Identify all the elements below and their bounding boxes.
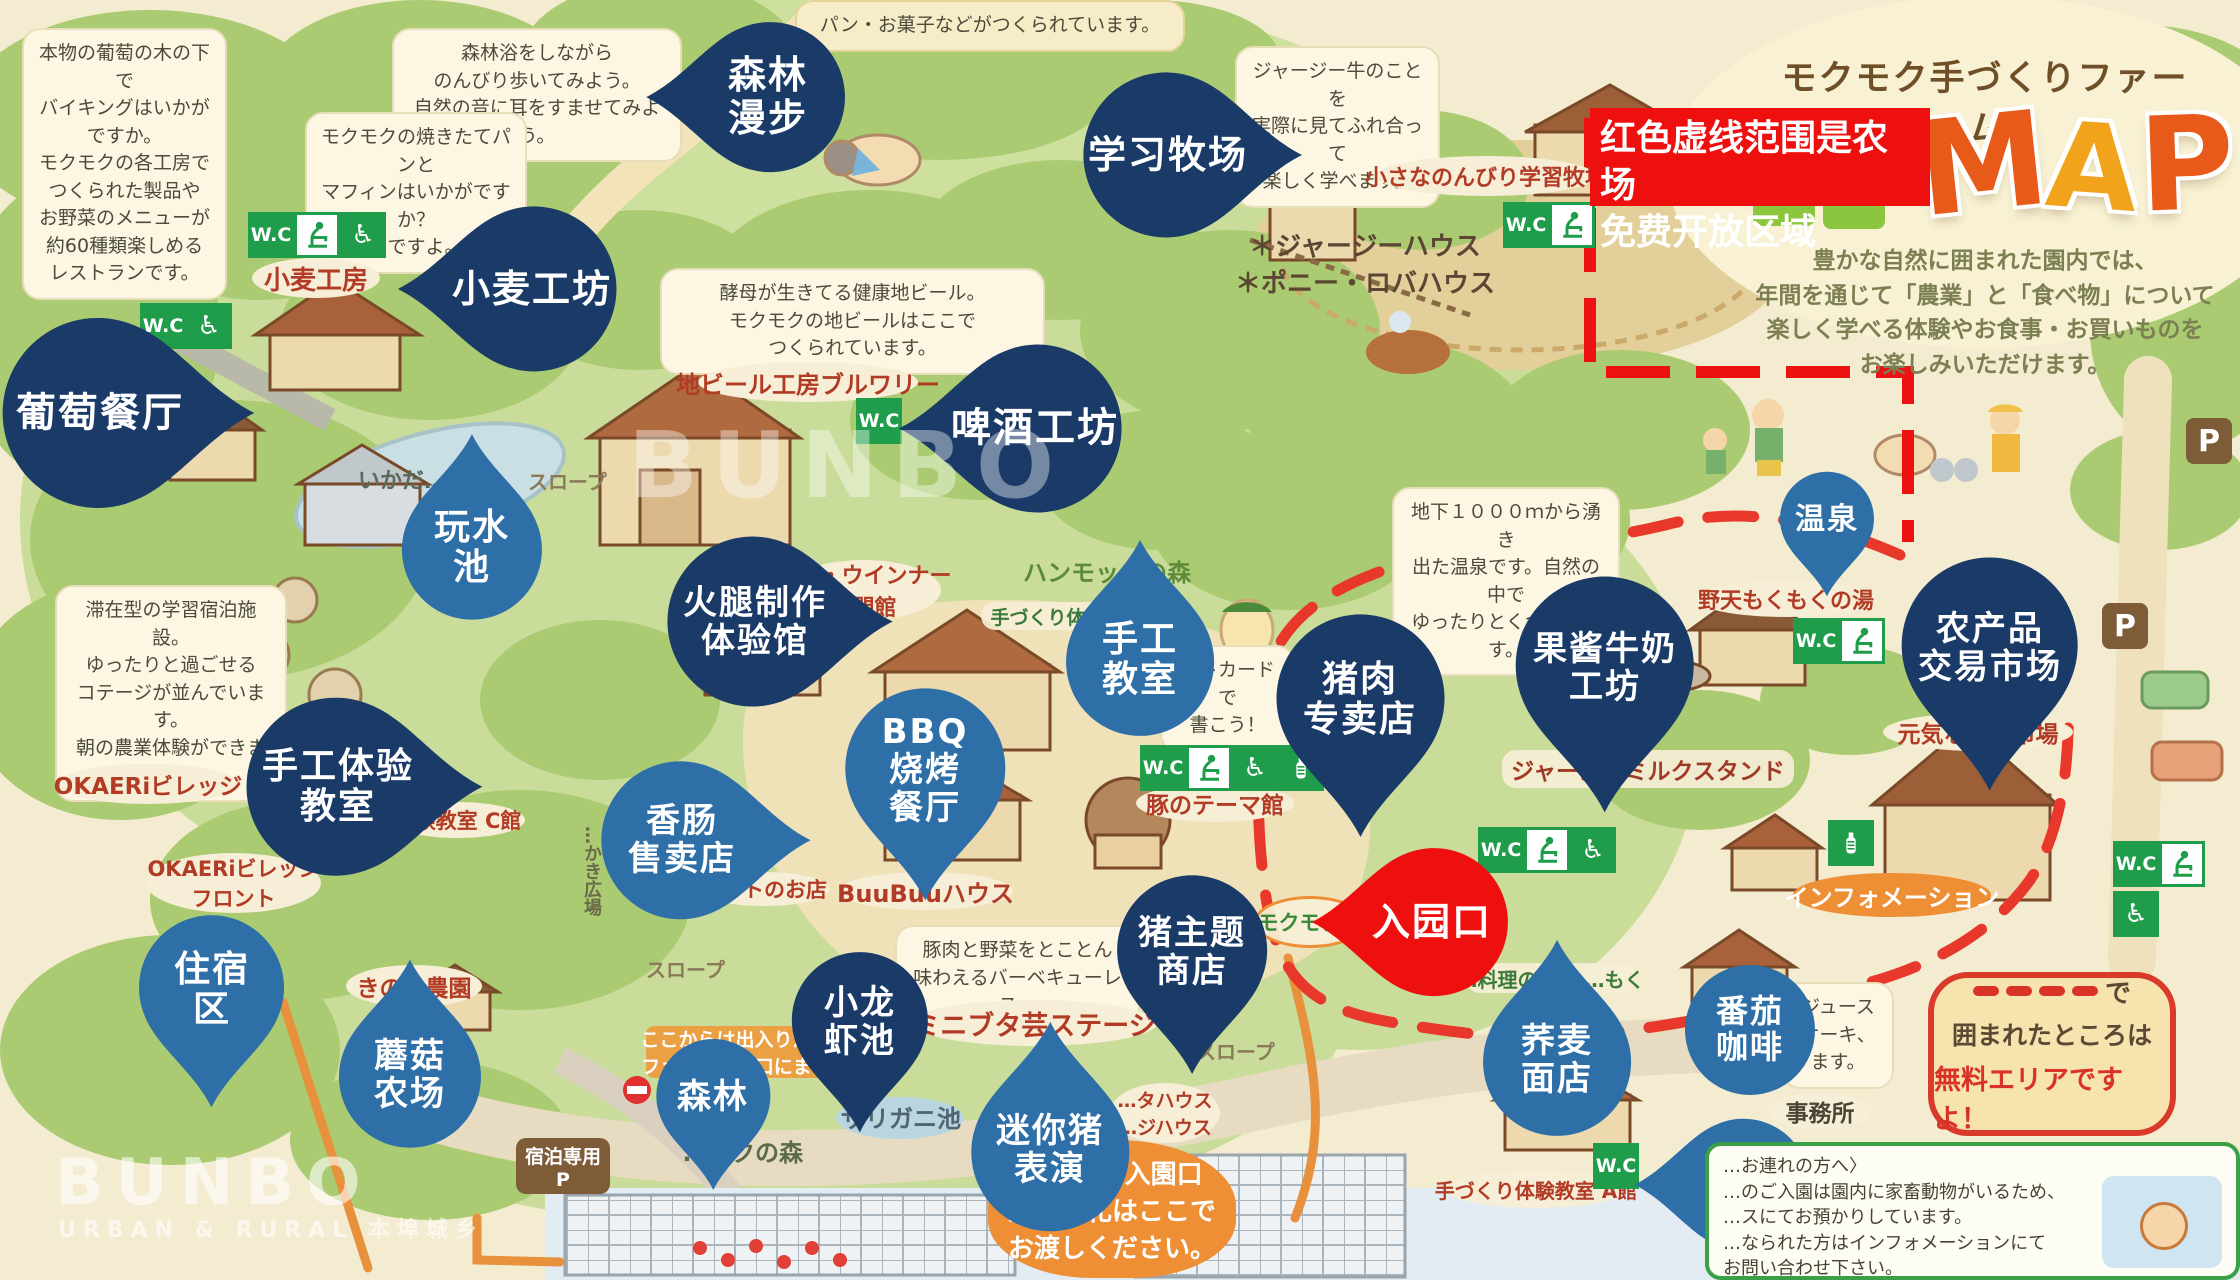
pin-label-line: 体验馆	[701, 622, 809, 660]
map-label: インフォメーション	[1793, 873, 1991, 917]
baby-icon	[1186, 745, 1232, 791]
watermark-center: BUNBO	[628, 412, 1068, 519]
wc-sign	[1828, 820, 1874, 866]
wc-icon: W.C	[1793, 618, 1839, 664]
speech-bubble: 本物の葡萄の木の下でバイキングはいかがですか。モクモクの各工房でつくられた製品や…	[22, 28, 227, 300]
pin-label-line: 池	[453, 548, 491, 588]
red-dash-icon	[2039, 986, 2065, 996]
baby-icon	[1549, 202, 1595, 248]
bubble-line: モクモクの各工房で	[36, 150, 213, 178]
map-label: 宿泊専用P	[516, 1138, 610, 1194]
pin-label-line: 入园口	[1372, 901, 1492, 944]
pin-label-line: 售卖店	[628, 840, 736, 878]
wc-sign: W.C	[1503, 202, 1595, 248]
pet-notice-box: …お連れの方へ〉 …のご入園は園内に家畜動物がいるため、 …スにてお預かりしてい…	[1705, 1142, 2240, 1280]
map-label-line: 豚のテーマ館	[1146, 786, 1284, 820]
red-notice-line: 免费开放区域	[1600, 210, 1920, 257]
pin-label: 森林漫步	[693, 22, 843, 172]
park-intro-text: 豊かな自然に囲まれた園内では、 年間を通じて「農業」と「食べ物」について 楽しく…	[1755, 244, 2215, 382]
map-label-line: 小さなのんびり学習牧場	[1365, 160, 1607, 192]
pin-label-line: 专卖店	[1303, 700, 1417, 740]
bottle-icon	[1828, 820, 1874, 866]
pin-label-line: 虾池	[824, 1022, 896, 1060]
pin-label: 猪主题商店	[1117, 877, 1267, 1027]
wheel-icon: ♿	[1570, 827, 1616, 873]
pin-label-line: 农产品	[1936, 610, 2044, 648]
pin-label: 葡萄餐厅	[5, 318, 195, 508]
map-letter-m: M	[1910, 82, 2055, 247]
pin-label: 住宿区	[140, 918, 285, 1063]
map-label-line: フロント	[192, 883, 276, 913]
pin-label-line: 小麦工坊	[452, 268, 612, 311]
wheel-icon: ♿	[2113, 891, 2159, 937]
map-label-line: お渡しください。	[1008, 1228, 1216, 1265]
pin-label-line: 手工	[1102, 620, 1178, 660]
pin-label-line: 蘑菇	[374, 1037, 446, 1075]
pin-label: 番茄咖啡	[1685, 965, 1815, 1095]
legend-line: 囲まれたところは	[1952, 1016, 2152, 1052]
wheel-icon: ♿	[340, 212, 386, 258]
pin-label-line: 表演	[1014, 1150, 1086, 1188]
pin-label: 温泉	[1780, 473, 1874, 567]
pin-label-line: 区	[193, 990, 231, 1030]
pin-label-line: 教室	[1102, 660, 1178, 700]
pin-label-line: 手工体验	[262, 747, 414, 787]
map-label-line: スロープ	[646, 954, 725, 983]
pin-label-line: 学习牧场	[1088, 134, 1248, 177]
pin-label-line: 餐厅	[889, 789, 961, 827]
wc-icon: W.C	[1140, 745, 1186, 791]
baby-icon	[1839, 618, 1885, 664]
watermark-corner: BUNBO	[55, 1146, 373, 1220]
bubble-line: 森林浴をしながら	[406, 40, 668, 68]
map-label-line: ＊ポニー・ロバハウス	[1235, 263, 1495, 300]
child-illustration	[2102, 1176, 2222, 1268]
pin-label-line: 面店	[1521, 1060, 1593, 1098]
pin-label-line: 猪主题	[1138, 914, 1246, 952]
map-letter-a: A	[2041, 95, 2143, 253]
pin-label-line: 葡萄餐厅	[16, 391, 184, 436]
pin-label: 小麦工坊	[450, 207, 615, 372]
bubble-line: お野菜のメニューが	[36, 205, 213, 233]
map-label-line: P	[2114, 609, 2136, 644]
pin-label-line: 森林	[728, 54, 808, 97]
map-label: P	[2102, 603, 2148, 649]
map-label: OKAERiビレッジ	[58, 764, 238, 804]
map-label: 小さなのんびり学習牧場	[1376, 156, 1596, 196]
wc-sign: W.C	[2113, 841, 2205, 887]
bubble-line: パン・お菓子などがつくられています。	[809, 12, 1171, 40]
pin-label-line: 交易市场	[1918, 648, 2062, 686]
pin-label: 小龙虾池	[792, 954, 928, 1090]
bubble-line: 滞在型の学習宿泊施設。	[69, 597, 273, 652]
pin-label-line: 香肠	[646, 802, 718, 840]
pin-label: 荞麦面店	[1483, 986, 1631, 1134]
map-letter-p: P	[2136, 86, 2237, 241]
pin-label-line: 温泉	[1795, 503, 1859, 537]
pin-label: 农产品交易市场	[1902, 560, 2078, 736]
map-label-line: P	[556, 1169, 570, 1191]
map-label-line: 小麦工房	[264, 260, 368, 297]
wc-sign: ♿	[2113, 891, 2159, 937]
bubble-line: 地下１０００ｍから湧き	[1406, 499, 1606, 554]
pin-label-line: 教室	[300, 787, 376, 827]
pin-label: 香肠售卖店	[603, 761, 761, 919]
pin-label-line: 荞麦	[1521, 1022, 1593, 1060]
legend-free-area-line: 無料エリアですよ！	[1934, 1058, 2170, 1136]
wc-sign: W.C	[1793, 618, 1885, 664]
legend-dashes: で	[1973, 973, 2131, 1010]
pin-label-line: 住宿	[174, 950, 250, 990]
bubble-line: 豚肉と野菜をとことん	[909, 937, 1126, 965]
pin-label: 火腿制作体验馆	[670, 537, 840, 707]
speech-bubble: パン・お菓子などがつくられています。	[795, 0, 1185, 52]
red-notice-line: 红色虚线范围是农场	[1600, 116, 1920, 210]
pin-label: 森林	[656, 1040, 770, 1154]
baby-icon	[294, 212, 340, 258]
baby-icon	[1524, 827, 1570, 873]
pin-label: 迷你猪表演	[971, 1071, 1129, 1229]
farm-map-page: 本物の葡萄の木の下でバイキングはいかがですか。モクモクの各工房でつくられた製品や…	[0, 0, 2240, 1280]
bubble-line: モクモクの地ビールはここで	[674, 308, 1031, 336]
pin-label: 手工教室	[1066, 586, 1214, 734]
pin-label-line: 玩水	[434, 508, 510, 548]
bubble-line: ゆったりと過ごせる	[69, 652, 273, 680]
wheel-icon: ♿	[1232, 745, 1278, 791]
pin-label-line: 迷你猪	[996, 1112, 1104, 1150]
map-label: 小麦工房	[252, 258, 380, 298]
map-label: スロープ	[646, 954, 725, 983]
red-dash-icon	[1973, 986, 1999, 996]
pin-label: 蘑菇农场	[339, 1004, 481, 1146]
pin-label-line: 小龙	[824, 984, 896, 1022]
wc-icon: W.C	[2113, 841, 2159, 887]
map-label: P	[2186, 418, 2232, 464]
bubble-line: 約60種類楽しめる	[36, 233, 213, 261]
intro-line: 年間を通じて「農業」と「食べ物」について	[1755, 279, 2215, 314]
pin-label-line: 番茄	[1716, 994, 1784, 1030]
bubble-line: 本物の葡萄の木の下で	[36, 40, 213, 95]
pin-label-line: 农场	[374, 1075, 446, 1113]
pin-label-line: 商店	[1156, 952, 1228, 990]
pin-label-line: 猪肉	[1322, 660, 1398, 700]
pin-label-line: BBQ	[882, 713, 969, 751]
pin-label-line: 火腿制作	[683, 584, 827, 622]
map-label-line: インフォメーション	[1785, 878, 2000, 913]
map-label-line: OKAERiビレッジ	[54, 767, 242, 801]
bubble-line: のんびり歩いてみよう。	[406, 68, 668, 96]
wc-icon: W.C	[248, 212, 294, 258]
pin-label-line: 漫步	[728, 97, 808, 140]
pin-label: 学习牧场	[1086, 73, 1251, 238]
pin-label-line: 果酱牛奶	[1533, 630, 1677, 668]
pin-label-line: 烧烤	[889, 751, 961, 789]
wc-sign: W.C♿	[248, 212, 386, 258]
pin-label-line: 咖啡	[1716, 1030, 1784, 1066]
bubble-line: 酵母が生きてる健康地ビール。	[674, 280, 1031, 308]
free-area-red-notice: 红色虚线范围是农场 免费开放区域	[1590, 108, 1930, 206]
intro-line: 楽しく学べる体験やお食事・お買いものを	[1755, 313, 2215, 348]
pin-label-line: 工坊	[1569, 668, 1641, 706]
map-label-line: P	[2198, 424, 2220, 459]
watermark-corner-subtitle: URBAN & RURAL 本埠城乡	[58, 1212, 484, 1244]
intro-line: お楽しみいただけます。	[1755, 348, 2215, 383]
red-dash-icon	[2006, 986, 2032, 996]
free-area-legend-callout: で 囲まれたところは 無料エリアですよ！	[1928, 972, 2176, 1136]
legend-suffix: で	[2105, 973, 2131, 1010]
pin-label: 玩水池	[402, 478, 542, 618]
pin-label-line: 森林	[677, 1078, 749, 1116]
map-label-line: 宿泊専用	[525, 1142, 601, 1169]
map-label: 地ビール工房ブルワリー	[698, 362, 918, 402]
pin-label: 果酱牛奶工坊	[1516, 579, 1694, 757]
red-dash-icon	[2072, 986, 2098, 996]
bubble-line: モクモクの焼きたてパンと	[319, 124, 513, 179]
bubble-line: バイキングはいかがですか。	[36, 95, 213, 150]
map-title-letters: M A P	[1918, 88, 2234, 240]
baby-icon	[2159, 841, 2205, 887]
pin-label: 手工体验教室	[249, 698, 427, 876]
bubble-line: つくられた製品や	[36, 178, 213, 206]
wc-icon: W.C	[1503, 202, 1549, 248]
bubble-line: コテージが並んでいます。	[69, 680, 273, 735]
pin-label: 猪肉专卖店	[1276, 616, 1444, 784]
pin-label: BBQ烧烤餐厅	[845, 690, 1005, 850]
bubble-line: レストランです。	[36, 260, 213, 288]
